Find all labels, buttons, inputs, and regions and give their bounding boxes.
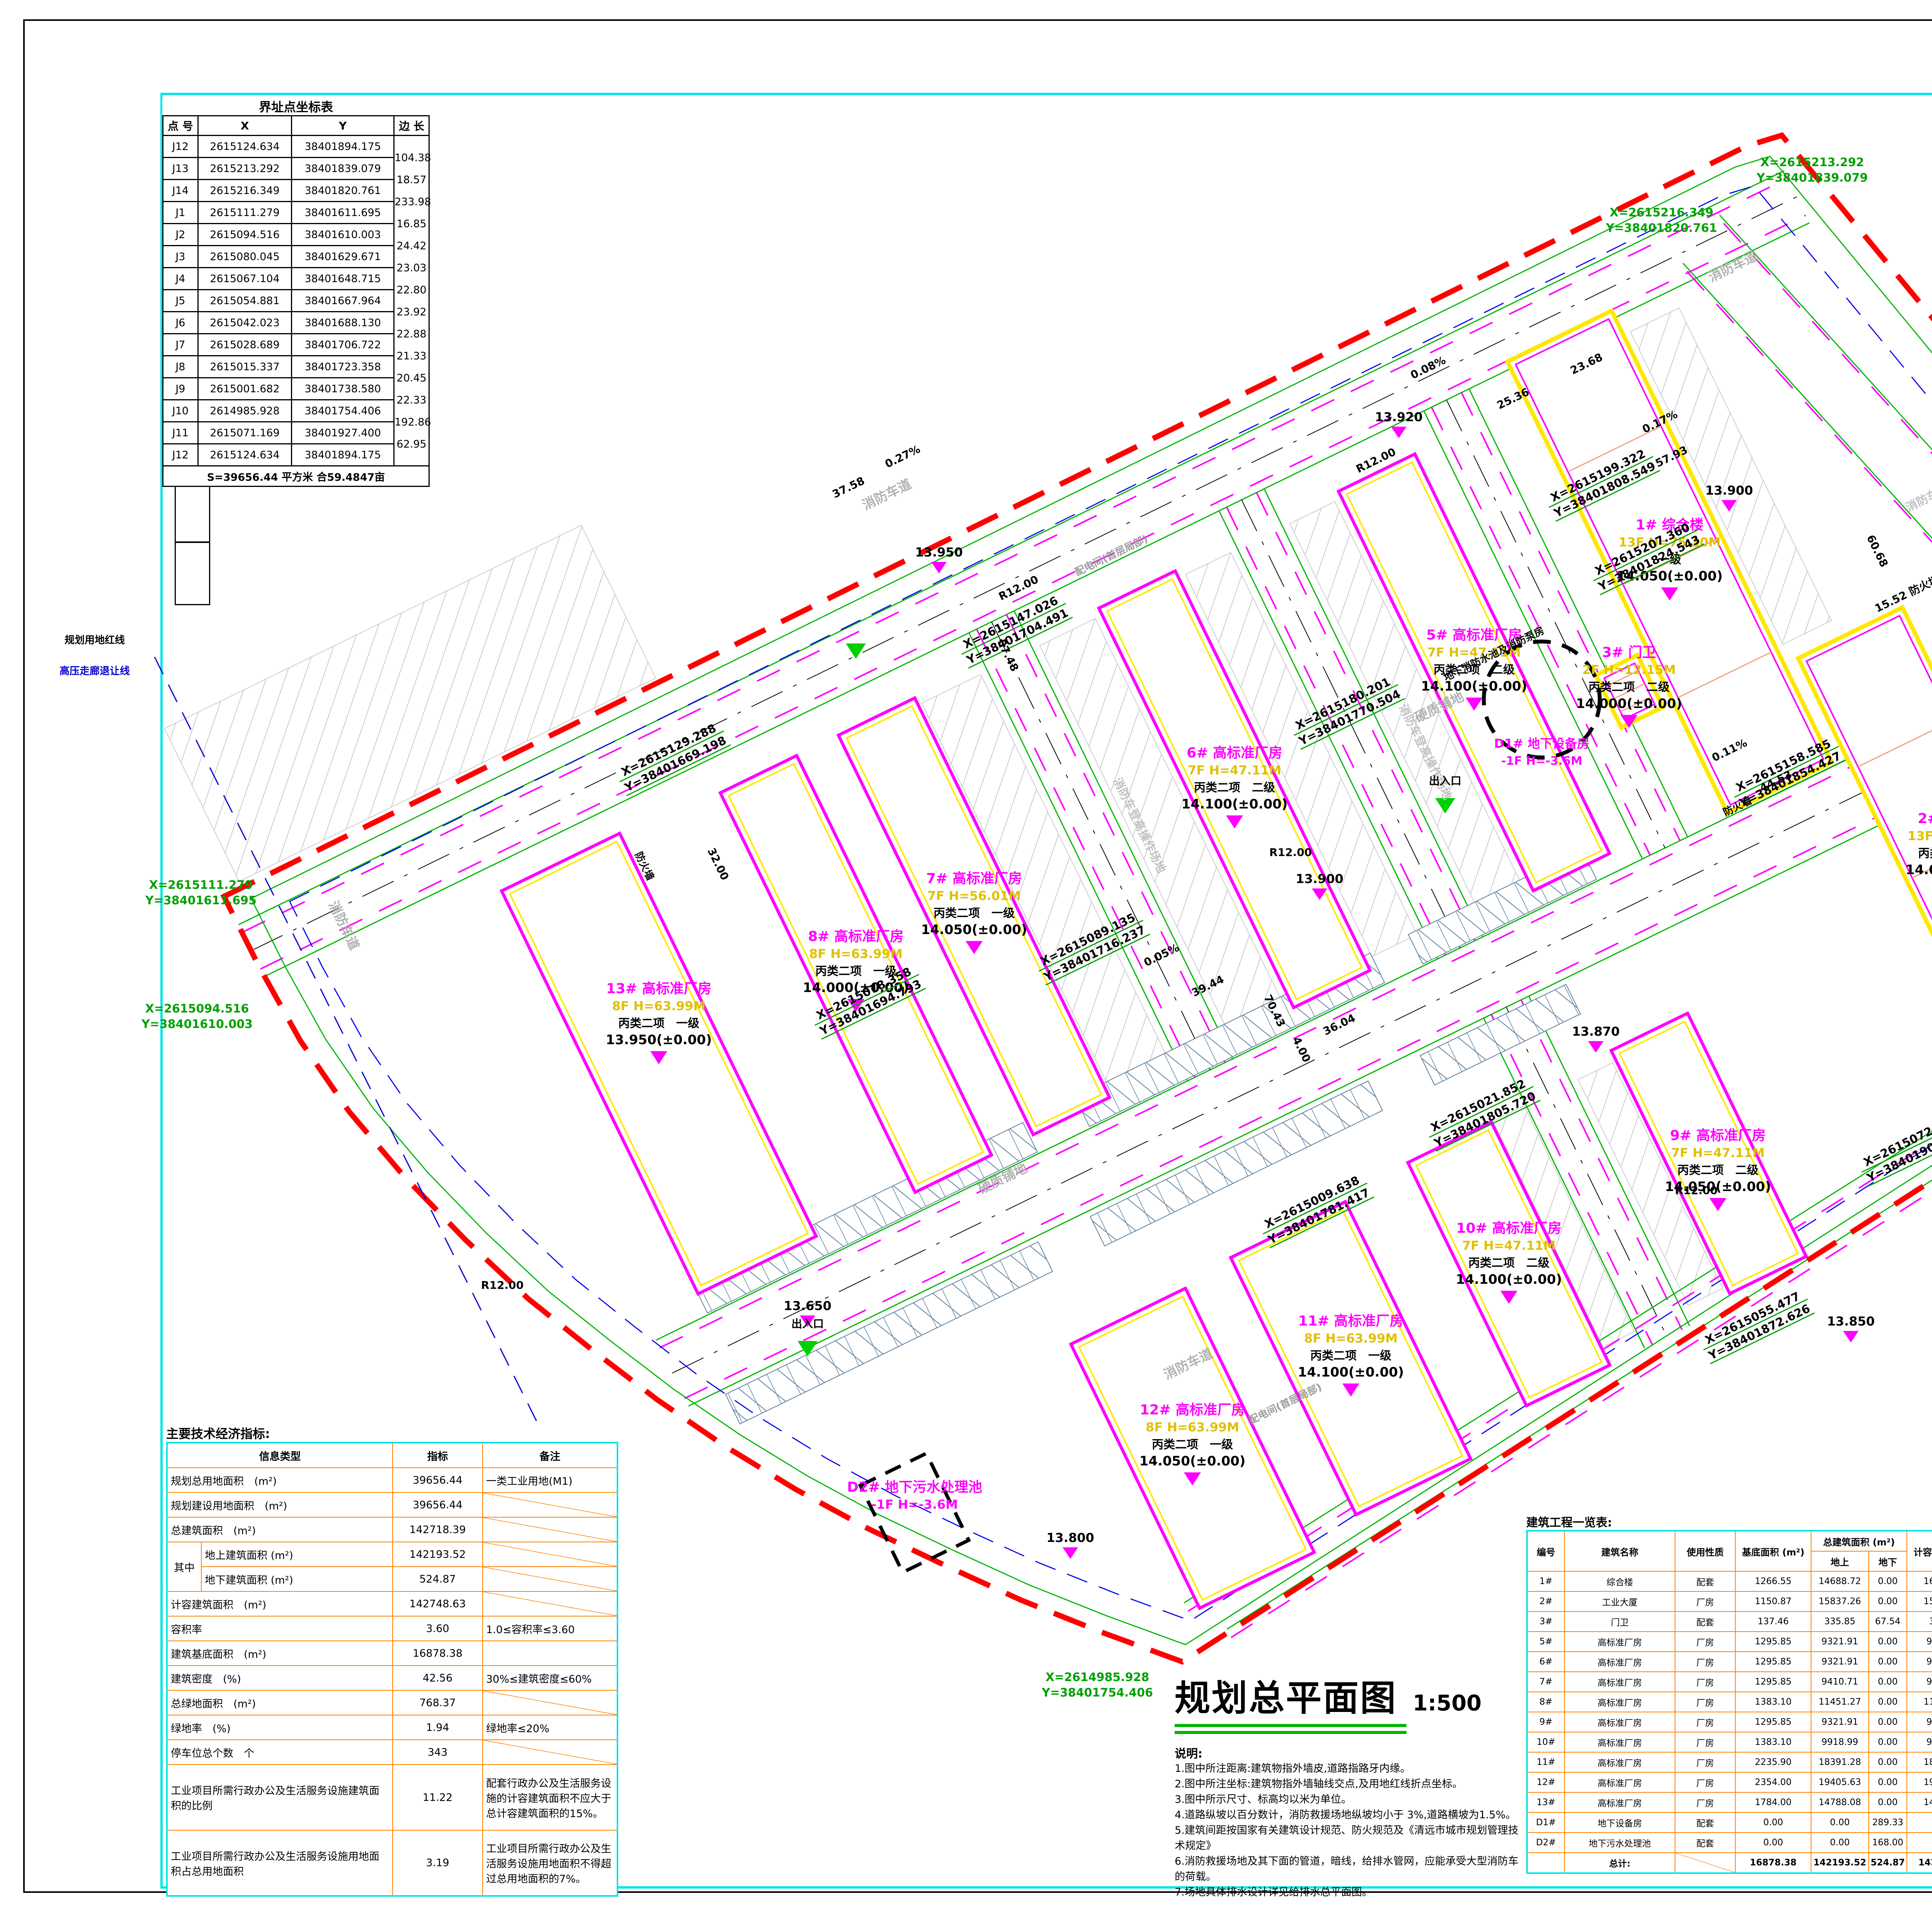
indicator-name: 总建筑面积 (m²)	[167, 1517, 393, 1542]
edge-length: 23.03	[395, 262, 429, 274]
table-row: 12#高标准厂房厂房2354.0019405.630.0019203.11202…	[1527, 1772, 1932, 1792]
cell: 10#	[1527, 1732, 1565, 1752]
indicator-name: 总绿地面积 (m²)	[167, 1690, 393, 1715]
plan-notes-title: 说明:	[1175, 1744, 1522, 1761]
plan-scale: 1:500	[1413, 1691, 1481, 1716]
table-row: 地下建筑面积 (m²)524.87	[167, 1567, 617, 1591]
table-row: 6#高标准厂房厂房1295.859321.910.009321.910.007F…	[1527, 1652, 1932, 1672]
edge-length: 22.33	[395, 394, 429, 406]
indicator-remark	[483, 1690, 617, 1715]
point-id: J12	[163, 444, 198, 466]
point-y: 38401723.358	[292, 356, 394, 378]
table-row: 9#高标准厂房厂房1295.859321.910.009321.910.007F…	[1527, 1712, 1932, 1732]
table-row: 工业项目所需行政办公及生活服务设施建筑面积的比例11.22配套行政办公及生活服务…	[167, 1765, 617, 1830]
edge-length: 22.88	[395, 328, 429, 340]
indicator-value: 39656.44	[393, 1492, 483, 1517]
point-x: 2615080.045	[198, 246, 291, 268]
table-row: 规划总用地面积 (m²)39656.44一类工业用地(M1)	[167, 1468, 617, 1492]
cell: 厂房	[1675, 1732, 1735, 1752]
indicator-value: 142718.39	[393, 1517, 483, 1542]
building-label: 13.950(±0.00)	[606, 1032, 712, 1048]
fire-operation-area	[165, 525, 656, 881]
cell: 9918.99	[1811, 1732, 1869, 1752]
indicator-remark: 配套行政办公及生活服务设施的计容建筑面积不应大于总计容建筑面积的15%。	[483, 1765, 617, 1830]
indicator-value: 39656.44	[393, 1468, 483, 1492]
svg-text:60.68: 60.68	[1864, 533, 1890, 569]
point-x: 2615094.516	[198, 224, 291, 246]
cell: 19405.63	[1811, 1772, 1869, 1792]
building-label: 2F H=12.15M	[1582, 662, 1676, 677]
point-x: 2615001.682	[198, 378, 291, 400]
building-label: 14.100(±0.00)	[1298, 1365, 1404, 1380]
svg-text:X=2614985.928: X=2614985.928	[1046, 1671, 1149, 1684]
building-label: 13# 高标准厂房	[606, 981, 712, 997]
point-id: J4	[163, 268, 198, 290]
cell: 地下污水处理池	[1565, 1833, 1675, 1853]
point-y: 38401820.761	[292, 180, 394, 202]
total-cell: 142193.52	[1811, 1853, 1869, 1873]
plan-note-line: 4.道路纵坡以百分数计，消防救援场地纵坡均小于 3%,道路横坡为1.5%。	[1175, 1807, 1522, 1823]
cell: 0.00	[1907, 1833, 1932, 1853]
column-header: 使用性质	[1675, 1531, 1735, 1571]
coordinate-table-title: 界址点坐标表	[162, 97, 430, 115]
svg-text:0.08%: 0.08%	[1408, 354, 1448, 381]
svg-text:X=2615213.292: X=2615213.292	[1760, 156, 1864, 169]
cell: 16021.09	[1907, 1571, 1932, 1591]
table-row: J82615015.33738401723.35820.45	[163, 356, 429, 378]
point-id: J6	[163, 312, 198, 334]
plan-annotation: 36.04	[1321, 1011, 1357, 1038]
cell: 0.00	[1811, 1833, 1869, 1853]
table-row: 13#高标准厂房厂房1784.0014788.080.0014659.25128…	[1527, 1792, 1932, 1812]
table-row: 11#高标准厂房厂房2235.9018391.280.0018176.06215…	[1527, 1752, 1932, 1772]
buildings-table-title: 建筑工程一览表:	[1526, 1513, 1932, 1530]
table-row: 停车位总个数 个343	[167, 1740, 617, 1765]
point-y: 38401667.964	[292, 290, 394, 312]
point-y: 38401629.671	[292, 246, 394, 268]
svg-text:13.900: 13.900	[1705, 483, 1753, 498]
cell: 0.00	[1869, 1792, 1907, 1812]
indicator-remark: 1.0≤容积率≤3.60	[483, 1616, 617, 1641]
edge-length: 233.98	[395, 196, 429, 208]
cell: 13#	[1527, 1792, 1565, 1812]
column-header: 地下	[1869, 1551, 1907, 1571]
plan-note-line: 2.图中所注坐标:建筑物指外墙轴线交点,及用地红线折点坐标。	[1175, 1777, 1522, 1792]
cell: 0.00	[1869, 1712, 1907, 1732]
column-header: 总建筑面积 (m²)	[1811, 1531, 1907, 1551]
point-y: 38401839.079	[292, 158, 394, 180]
cell: 配套	[1675, 1833, 1735, 1853]
indicator-remark: 一类工业用地(M1)	[483, 1468, 617, 1492]
svg-text:X=2615216.349: X=2615216.349	[1610, 206, 1713, 220]
table-row: J122615124.63438401894.175104.38	[163, 136, 429, 158]
cell: 高标准厂房	[1565, 1732, 1675, 1752]
svg-text:0.05%: 0.05%	[1142, 941, 1181, 969]
cell: 14659.25	[1907, 1792, 1932, 1812]
cell: 9321.91	[1907, 1652, 1932, 1672]
table-row: 7#高标准厂房厂房1295.859410.710.009323.7886.937…	[1527, 1672, 1932, 1692]
cell: 配套	[1675, 1812, 1735, 1833]
cell: 14788.08	[1811, 1792, 1869, 1812]
cell: 0.00	[1869, 1672, 1907, 1692]
indicator-name: 工业项目所需行政办公及生活服务设施建筑面积的比例	[167, 1765, 393, 1830]
building-label: 7F H=47.11M	[1671, 1145, 1765, 1160]
table-row: J22615094.51638401610.00324.42	[163, 224, 429, 246]
cell: 1295.85	[1735, 1672, 1811, 1692]
svg-text:出入口: 出入口	[1429, 774, 1461, 787]
table-row: D1#地下设备房配套0.000.00289.330.00289.33-1F-3.…	[1527, 1812, 1932, 1833]
plan-annotation: 0.27%	[883, 442, 922, 470]
indicator-name: 地下建筑面积 (m²)	[201, 1567, 393, 1591]
cell: 厂房	[1675, 1772, 1735, 1792]
plan-annotation: X=2614985.928Y=38401754.406	[1041, 1671, 1153, 1700]
plan-annotation: 0.08%	[1408, 354, 1448, 381]
plan-annotation: 消防车道	[1706, 248, 1760, 285]
point-y: 38401894.175	[292, 444, 394, 466]
cell: 1#	[1527, 1571, 1565, 1591]
cell: 335.85	[1811, 1612, 1869, 1632]
cell: 厂房	[1675, 1712, 1735, 1732]
cell: 335.85	[1907, 1612, 1932, 1632]
point-id: J9	[163, 378, 198, 400]
point-x: 2615124.634	[198, 444, 291, 466]
plan-annotation: 配电间(首层局部)	[1073, 533, 1150, 578]
edge-length: 18.57	[395, 174, 429, 186]
building-label: 丙类二项 一级	[1918, 847, 1932, 860]
cell: D1#	[1527, 1812, 1565, 1833]
cell: 19203.11	[1907, 1772, 1932, 1792]
cell: 0.00	[1869, 1752, 1907, 1772]
cell: 1784.00	[1735, 1792, 1811, 1812]
cell: 地下设备房	[1565, 1812, 1675, 1833]
plan-annotation: 37.58	[830, 474, 867, 500]
cell: 0.00	[1869, 1591, 1907, 1612]
svg-text:Y=38401610.003: Y=38401610.003	[141, 1018, 253, 1031]
plan-annotation: 消防车登高操作场地	[1904, 457, 1932, 515]
column-header: 指标	[393, 1443, 483, 1468]
building-label: 2# 工业大厦	[1918, 811, 1932, 827]
point-y: 38401754.406	[292, 400, 394, 422]
building-label: 9# 高标准厂房	[1670, 1128, 1766, 1144]
indicator-name: 停车位总个数 个	[167, 1740, 393, 1765]
cell: 12#	[1527, 1772, 1565, 1792]
total-cell	[1675, 1853, 1735, 1873]
area-summary: S=39656.44 平方米 合59.4847亩	[163, 466, 429, 487]
cell: 137.46	[1735, 1612, 1811, 1632]
table-row: 规划建设用地面积 (m²)39656.44	[167, 1492, 617, 1517]
building-label: D2# 地下污水处理池	[847, 1479, 982, 1495]
svg-text:X=2615094.516: X=2615094.516	[145, 1002, 249, 1016]
plan-annotation: 60.68	[1864, 533, 1890, 569]
table-row: J112615071.16938401927.40062.95	[163, 422, 429, 444]
cell: 7#	[1527, 1672, 1565, 1692]
cell: 配套	[1675, 1571, 1735, 1591]
table-total-row: 总计:16878.38142193.52524.87142748.631302.…	[1527, 1853, 1932, 1873]
table-row: J132615213.29238401839.07918.57	[163, 158, 429, 180]
building-label: 8F H=63.99M	[612, 999, 706, 1013]
building-label: 3# 门卫	[1602, 645, 1656, 660]
table-row: 3#门卫配套137.46335.8567.54335.8567.54-1F/2F…	[1527, 1612, 1932, 1632]
point-x: 2615124.634	[198, 136, 291, 158]
indicator-name: 规划建设用地面积 (m²)	[167, 1492, 393, 1517]
column-header: X	[198, 116, 291, 136]
plan-annotation: R12.00	[1269, 846, 1312, 859]
table-footer-row: S=39656.44 平方米 合59.4847亩	[163, 466, 429, 487]
plan-annotation: 32.00	[705, 846, 731, 882]
cell: 厂房	[1675, 1752, 1735, 1772]
total-cell: 142748.63	[1907, 1853, 1932, 1873]
indicator-name: 地上建筑面积 (m²)	[201, 1542, 393, 1567]
cell: 0.00	[1735, 1833, 1811, 1853]
building-label: 8F H=63.99M	[1146, 1420, 1239, 1435]
point-id: J7	[163, 334, 198, 356]
cell: 厂房	[1675, 1792, 1735, 1812]
cell: 0.00	[1869, 1692, 1907, 1712]
svg-text:13.650: 13.650	[784, 1298, 831, 1313]
indicator-value: 3.60	[393, 1616, 483, 1641]
svg-text:13.900: 13.900	[1296, 871, 1343, 886]
point-id: J8	[163, 356, 198, 378]
column-header: 信息类型	[167, 1443, 393, 1468]
column-header: 地上	[1811, 1551, 1869, 1571]
indicator-value: 42.56	[393, 1666, 483, 1690]
point-x: 2615054.881	[198, 290, 291, 312]
building-label: 丙类二项 二级	[1468, 1256, 1549, 1270]
cell: 9321.91	[1907, 1632, 1932, 1652]
cell: 高标准厂房	[1565, 1752, 1675, 1772]
indicator-name: 工业项目所需行政办公及生活服务设施用地面积占总用地面积	[167, 1830, 393, 1896]
point-x: 2615067.104	[198, 268, 291, 290]
plan-title: 规划总平面图	[1175, 1669, 1397, 1721]
table-row: 1#综合楼配套1266.5514688.720.0016021.090.0013…	[1527, 1571, 1932, 1591]
cell: 289.33	[1869, 1812, 1907, 1833]
cell: 综合楼	[1565, 1571, 1675, 1591]
point-x: 2615216.349	[198, 180, 291, 202]
svg-text:规划用地红线: 规划用地红线	[65, 634, 125, 646]
building-label: 8F H=63.99M	[809, 946, 903, 961]
point-y: 38401648.715	[292, 268, 394, 290]
indicator-name: 规划总用地面积 (m²)	[167, 1468, 393, 1492]
building-label: -1F H=-3.6M	[871, 1497, 958, 1512]
edge-length: 21.33	[395, 350, 429, 362]
cell: 2#	[1527, 1591, 1565, 1612]
plan-annotation: X=2615055.477Y=38401872.626	[1697, 1287, 1815, 1364]
indicators-table: 信息类型指标备注规划总用地面积 (m²)39656.44一类工业用地(M1)规划…	[166, 1442, 618, 1897]
cell: 1383.10	[1735, 1732, 1811, 1752]
table-header-row: 点 号XY边 长	[163, 116, 429, 136]
plan-annotation: X=2615111.279Y=38401611.695	[145, 878, 257, 907]
point-y: 38401706.722	[292, 334, 394, 356]
buildings-table-block: 建筑工程一览表: 编号建筑名称使用性质基底面积 (m²)总建筑面积 (m²)计容…	[1526, 1513, 1932, 1874]
svg-text:Y=38401611.695: Y=38401611.695	[145, 894, 257, 907]
plan-annotation: 13.850	[1827, 1314, 1874, 1343]
table-row: 工业项目所需行政办公及生活服务设施用地面积占总用地面积3.19工业项目所需行政办…	[167, 1830, 617, 1896]
svg-text:消防车道: 消防车道	[1706, 248, 1760, 285]
point-id: J12	[163, 136, 198, 158]
building-label: 14.100(±0.00)	[1182, 796, 1288, 812]
cell: 9410.71	[1811, 1672, 1869, 1692]
svg-text:4.00: 4.00	[1290, 1035, 1313, 1065]
cell: 高标准厂房	[1565, 1772, 1675, 1792]
cell: 11#	[1527, 1752, 1565, 1772]
table-row: J72615028.68938401706.72221.33	[163, 334, 429, 356]
point-y: 38401894.175	[292, 136, 394, 158]
building-label: 7F H=47.11M	[1462, 1238, 1556, 1253]
plan-annotation: 13.950	[915, 545, 963, 573]
indicator-remark	[483, 1641, 617, 1666]
cell: 9321.91	[1811, 1632, 1869, 1652]
cell: 1295.85	[1735, 1712, 1811, 1732]
indicators-title: 主要技术经济指标:	[166, 1424, 618, 1442]
table-row: 总绿地面积 (m²)768.37	[167, 1690, 617, 1715]
group-label: 其中	[167, 1542, 201, 1591]
svg-text:Y=38401820.761: Y=38401820.761	[1605, 221, 1717, 235]
edge-length: 22.80	[395, 284, 429, 296]
plan-note-line: 5.建筑间距按国家有关建筑设计规范、防火规范及《清远市城市规划管理技术规定》	[1175, 1823, 1522, 1854]
plan-note-line: 1.图中所注距离:建筑物指外墙皮,道路指路牙内缘。	[1175, 1761, 1522, 1777]
cell: 9323.78	[1907, 1672, 1932, 1692]
table-row: 10#高标准厂房厂房1383.109918.990.009918.990.007…	[1527, 1732, 1932, 1752]
point-x: 2615042.023	[198, 312, 291, 334]
plan-annotation: 出入口	[791, 1317, 824, 1330]
table-row: 容积率3.601.0≤容积率≤3.60	[167, 1616, 617, 1641]
point-id: J11	[163, 422, 198, 444]
point-id: J5	[163, 290, 198, 312]
building-label: 8F H=63.99M	[1304, 1331, 1398, 1346]
building-label: 14.050(±0.00)	[1906, 862, 1932, 878]
svg-text:32.00: 32.00	[705, 846, 731, 882]
cell: 18176.06	[1907, 1752, 1932, 1772]
table-row: J32615080.04538401629.67123.03	[163, 246, 429, 268]
building-label: 丙类二项 一级	[1152, 1438, 1233, 1452]
indicator-remark	[483, 1740, 617, 1765]
point-x: 2614985.928	[198, 400, 291, 422]
cell: 9321.91	[1907, 1712, 1932, 1732]
edge-length: 16.85	[395, 218, 429, 230]
building-label: 丙类二项 一级	[1310, 1349, 1391, 1363]
point-y: 38401688.130	[292, 312, 394, 334]
cell: 9321.91	[1811, 1712, 1869, 1732]
cell: 0.00	[1869, 1732, 1907, 1752]
total-cell: 总计:	[1565, 1853, 1675, 1873]
plan-annotation: R12.00	[481, 1279, 524, 1292]
cell: 6#	[1527, 1652, 1565, 1672]
cell: 15837.26	[1907, 1591, 1932, 1612]
table-row: J102614985.92838401754.406192.86	[163, 400, 429, 422]
building-label: 11# 高标准厂房	[1298, 1313, 1404, 1329]
indicator-value: 343	[393, 1740, 483, 1765]
cell: 9321.91	[1811, 1652, 1869, 1672]
indicator-remark: 工业项目所需行政办公及生活服务设施用地面积不得超过总用地面积的7%。	[483, 1830, 617, 1896]
building-label: 10# 高标准厂房	[1456, 1220, 1562, 1236]
building-label: -1F H=-3.6M	[1501, 754, 1582, 768]
point-x: 2615071.169	[198, 422, 291, 444]
table-row: D2#地下污水处理池配套0.000.00168.000.00168.00-1F-…	[1527, 1833, 1932, 1853]
cell: 3#	[1527, 1612, 1565, 1632]
svg-text:R12.00: R12.00	[481, 1279, 524, 1292]
cell: 67.54	[1869, 1612, 1907, 1632]
cell: 9#	[1527, 1712, 1565, 1732]
cell: 工业大厦	[1565, 1591, 1675, 1612]
svg-text:25.36: 25.36	[1495, 385, 1531, 412]
cell: 高标准厂房	[1565, 1792, 1675, 1812]
plan-annotation: X=2615072.512Y=38401903.404	[1856, 1109, 1932, 1186]
indicator-remark: 30%≤建筑密度≤60%	[483, 1666, 617, 1690]
point-id: J14	[163, 180, 198, 202]
point-y: 38401610.003	[292, 224, 394, 246]
table-row: 总建筑面积 (m²)142718.39	[167, 1517, 617, 1542]
column-header: 建筑名称	[1565, 1531, 1675, 1571]
cell: 厂房	[1675, 1672, 1735, 1692]
table-header-row: 编号建筑名称使用性质基底面积 (m²)总建筑面积 (m²)计容面积 (m²)不计…	[1527, 1531, 1932, 1551]
point-y: 38401738.580	[292, 378, 394, 400]
cell: 15837.26	[1811, 1591, 1869, 1612]
column-header: 点 号	[163, 116, 198, 136]
building-label: 8# 高标准厂房	[808, 929, 904, 944]
cell: 18391.28	[1811, 1752, 1869, 1772]
building-label: D1# 地下设备房	[1494, 736, 1590, 751]
point-id: J10	[163, 400, 198, 422]
cell: 0.00	[1869, 1772, 1907, 1792]
total-cell: 16878.38	[1735, 1853, 1811, 1873]
cell: 5#	[1527, 1632, 1565, 1652]
svg-text:13.920: 13.920	[1375, 410, 1422, 424]
cell: 厂房	[1675, 1652, 1735, 1672]
cell: 11451.27	[1811, 1692, 1869, 1712]
total-cell	[1527, 1853, 1565, 1873]
indicator-value: 142748.63	[393, 1591, 483, 1616]
indicator-value: 1.94	[393, 1715, 483, 1740]
edge-length: 62.95	[395, 438, 429, 450]
svg-text:配电间(首层局部): 配电间(首层局部)	[1073, 533, 1150, 578]
plan-annotation: R12.00	[1675, 1184, 1718, 1197]
plan-note-line: 7.场地具体排水设计详见给排水总平面图。	[1175, 1885, 1522, 1900]
svg-text:高压走廊退让线: 高压走廊退让线	[60, 665, 130, 677]
cell: 0.00	[1735, 1812, 1811, 1833]
column-header: 基底面积 (m²)	[1735, 1531, 1811, 1571]
indicator-value: 142193.52	[393, 1542, 483, 1567]
plan-annotation: 25.36	[1495, 385, 1531, 412]
cell: 1383.10	[1735, 1692, 1811, 1712]
svg-text:36.04: 36.04	[1321, 1011, 1357, 1038]
point-id: J3	[163, 246, 198, 268]
point-id: J13	[163, 158, 198, 180]
cell: 0.00	[1869, 1632, 1907, 1652]
table-header-row: 信息类型指标备注	[167, 1443, 617, 1468]
indicator-value: 524.87	[393, 1567, 483, 1591]
table-row: 建筑密度 (%)42.5630%≤建筑密度≤60%	[167, 1666, 617, 1690]
building-label: 14.100(±0.00)	[1456, 1272, 1562, 1287]
indicator-value: 768.37	[393, 1690, 483, 1715]
cell: 1295.85	[1735, 1652, 1811, 1672]
column-header: 计容面积 (m²)	[1907, 1531, 1932, 1571]
indicator-remark: 绿地率≤20%	[483, 1715, 617, 1740]
cell: 高标准厂房	[1565, 1712, 1675, 1732]
column-header: 备注	[483, 1443, 617, 1468]
point-x: 2615213.292	[198, 158, 291, 180]
svg-text:R12.00: R12.00	[1675, 1184, 1718, 1197]
edge-length: 104.38	[395, 152, 429, 164]
plan-note-line: 3.图中所示尺寸、标高均以米为单位。	[1175, 1792, 1522, 1807]
building-label: 14.050(±0.00)	[1139, 1453, 1246, 1469]
cell: 0.00	[1811, 1812, 1869, 1833]
plan-title-block: 规划总平面图 1:500 说明: 1.图中所注距离:建筑物指外墙皮,道路指路牙内…	[1175, 1669, 1522, 1900]
cell: 0.00	[1869, 1652, 1907, 1672]
svg-text:Y=38401839.079: Y=38401839.079	[1756, 171, 1868, 185]
boundary-coordinate-table: 界址点坐标表 点 号XY边 长J122615124.63438401894.17…	[162, 97, 430, 487]
indicator-remark	[483, 1517, 617, 1542]
edge-length-cell: 104.38	[394, 136, 429, 158]
